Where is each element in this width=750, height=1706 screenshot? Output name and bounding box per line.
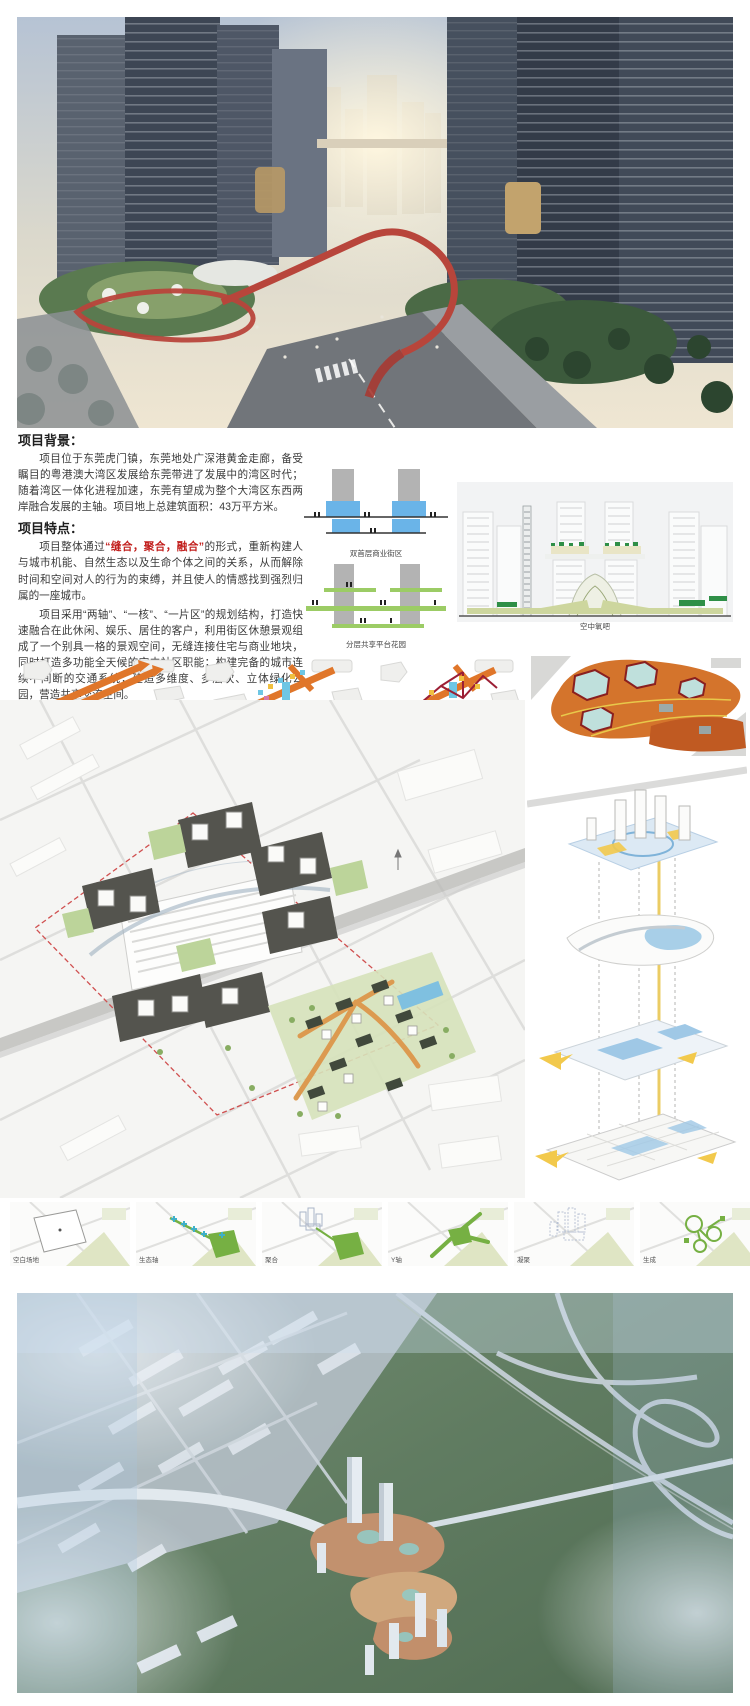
process-label: 聚合 <box>265 1258 278 1265</box>
process-thumb-y-axis: Y轴 <box>388 1202 508 1266</box>
exploded-axon-diagram <box>527 762 747 1192</box>
strategy-diagram-masterplan <box>531 656 746 756</box>
double-ground-retail-caption: 双首层商业街区 <box>302 550 450 558</box>
features-paragraph-1: 项目整体通过“缝合，聚合，融合”的形式，重新构建人与城市机能、自然生态以及生命个… <box>18 539 303 603</box>
presentation-board: 项目背景： 项目位于东莞虎门镇，东莞地处广深港黄金走廊，备受瞩目的粤港澳大湾区发… <box>0 0 750 1706</box>
process-thumbnail-row: 空白场地 生态轴 <box>0 1202 750 1272</box>
aerial-render-image <box>17 1293 733 1693</box>
process-label: 空白场地 <box>13 1258 39 1265</box>
process-label: Y轴 <box>391 1258 402 1265</box>
layered-platform-garden-caption: 分层共享平台花园 <box>302 641 450 649</box>
background-heading: 项目背景： <box>18 430 303 449</box>
process-label: 生成 <box>643 1258 656 1265</box>
masterplan-image <box>0 700 525 1198</box>
features-heading: 项目特点： <box>18 518 303 537</box>
layered-platform-garden-diagram: 分层共享平台花园 <box>302 562 450 654</box>
process-label: 生态轴 <box>139 1258 159 1265</box>
hero-render-image <box>17 17 733 428</box>
process-thumb-cohesion: 凝聚 <box>514 1202 634 1266</box>
background-paragraph: 项目位于东莞虎门镇，东莞地处广深港黄金走廊，备受瞩目的粤港澳大湾区发展给东莞带进… <box>18 451 303 515</box>
process-label: 凝聚 <box>517 1258 530 1265</box>
sky-oxygen-bar-caption: 空中氧吧 <box>457 623 733 631</box>
process-thumb-eco-axis: 生态轴 <box>136 1202 256 1266</box>
sky-oxygen-bar-elevation: 空中氧吧 <box>457 482 733 634</box>
double-ground-retail-diagram: 双首层商业街区 <box>302 465 450 561</box>
process-thumb-blank-site: 空白场地 <box>10 1202 130 1266</box>
process-thumb-aggregate: 聚合 <box>262 1202 382 1266</box>
highlighted-keywords: “缝合，聚合，融合” <box>105 541 204 553</box>
process-thumb-generate: 生成 <box>640 1202 750 1266</box>
